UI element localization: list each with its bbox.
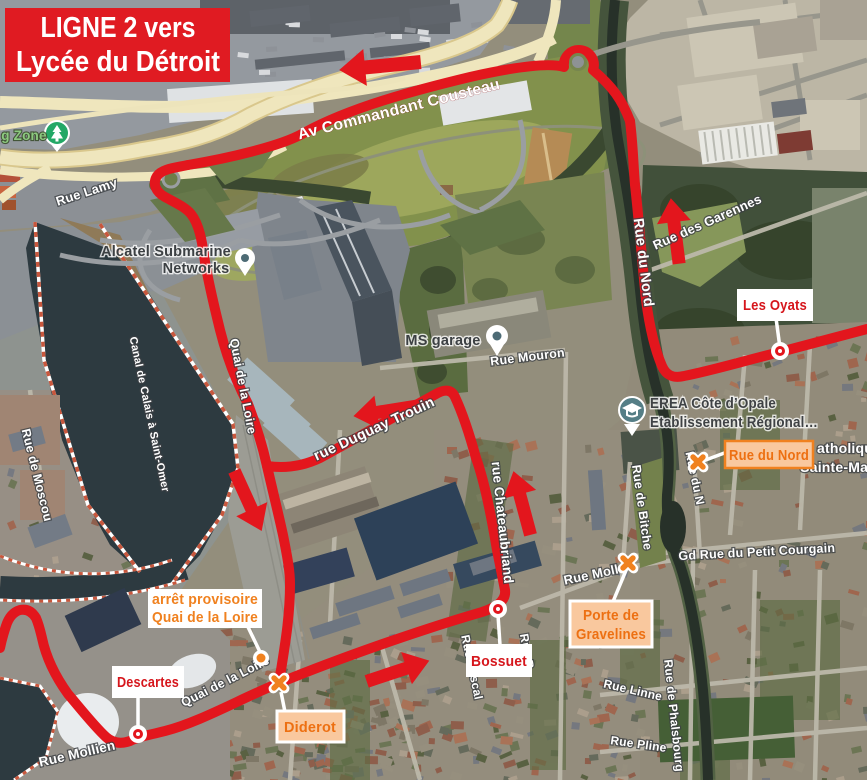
svg-text:Les Oyats: Les Oyats — [743, 297, 807, 314]
svg-text:Quai de la Loire: Quai de la Loire — [152, 609, 258, 626]
svg-text:EREA Côte d’Opale: EREA Côte d’Opale — [650, 395, 776, 412]
svg-text:Rue du Nord: Rue du Nord — [729, 447, 809, 464]
svg-text:atholique: atholique — [817, 440, 867, 456]
svg-text:g Zone: g Zone — [1, 128, 47, 143]
svg-text:LIGNE 2 vers: LIGNE 2 vers — [41, 12, 196, 44]
svg-text:Porte de: Porte de — [583, 607, 639, 624]
svg-text:Gravelines: Gravelines — [576, 626, 646, 643]
svg-text:Lycée du Détroit: Lycée du Détroit — [16, 46, 220, 78]
svg-text:Bossuet: Bossuet — [471, 653, 527, 670]
svg-text:Networks: Networks — [163, 261, 230, 277]
svg-text:Etablissement Régional…: Etablissement Régional… — [650, 414, 818, 431]
svg-text:Alcatel Submarine: Alcatel Submarine — [101, 244, 231, 260]
svg-text:arrêt provisoire: arrêt provisoire — [152, 591, 258, 608]
svg-text:MS garage: MS garage — [405, 333, 480, 349]
svg-text:Descartes: Descartes — [117, 674, 179, 691]
svg-text:Diderot: Diderot — [284, 719, 336, 736]
